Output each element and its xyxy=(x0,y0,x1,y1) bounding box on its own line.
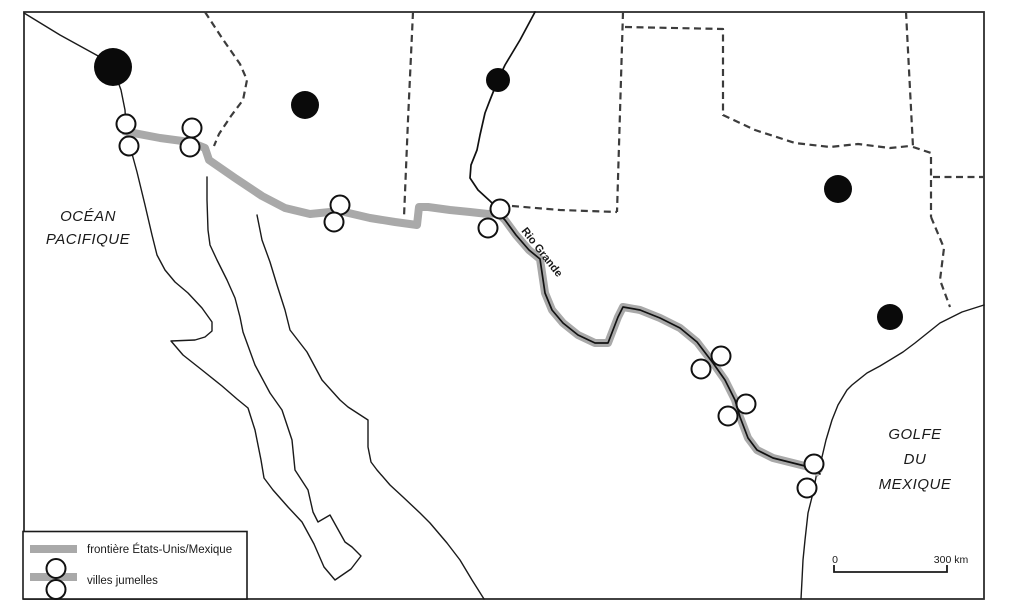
state-border-texas-oklahoma xyxy=(625,27,910,148)
map-page: OCÉAN PACIFIQUE GOLFE DU MEXIQUE Rio Gra… xyxy=(0,0,1010,610)
state-border-newmexico-texas-vertical xyxy=(617,12,623,212)
twin-city-marker xyxy=(325,213,344,232)
scale-bar-line xyxy=(834,565,947,572)
twin-city-marker xyxy=(798,479,817,498)
twin-city-marker xyxy=(479,219,498,238)
twin-city-marker xyxy=(181,138,200,157)
major-cities-layer xyxy=(94,48,903,330)
twin-city-marker xyxy=(737,395,756,414)
state-border-texas-louisiana xyxy=(931,217,950,307)
map-frame xyxy=(24,12,984,599)
state-border-newmexico-texas-horizontal xyxy=(512,206,617,212)
major-city-dot xyxy=(824,175,852,203)
state-border-california-arizona xyxy=(205,12,247,146)
scale-end-label: 300 km xyxy=(934,554,969,566)
border-map-canvas: OCÉAN PACIFIQUE GOLFE DU MEXIQUE Rio Gra… xyxy=(0,0,1010,610)
state-border-oklahoma-arkansas xyxy=(906,12,913,147)
gulf-label-line1: GOLFE xyxy=(888,426,942,443)
scale-start-label: 0 xyxy=(832,554,838,566)
twin-city-marker xyxy=(120,137,139,156)
twin-city-marker xyxy=(491,200,510,219)
major-city-dot xyxy=(291,91,319,119)
gulf-label-line3: MEXIQUE xyxy=(879,476,952,493)
major-city-dot xyxy=(877,304,903,330)
twin-city-marker xyxy=(183,119,202,138)
legend-border-label: frontière États-Unis/Mexique xyxy=(87,543,232,556)
legend: frontière États-Unis/Mexique villes jume… xyxy=(23,532,247,600)
gulf-label-line2: DU xyxy=(904,451,927,468)
mainland-mexico-coastline xyxy=(257,215,484,599)
state-border-texas-arkansas xyxy=(913,147,931,217)
scale-bar: 0 300 km xyxy=(832,554,968,572)
twin-city-marker xyxy=(117,115,136,134)
ocean-label-line2: PACIFIQUE xyxy=(46,231,131,248)
twin-city-marker xyxy=(719,407,738,426)
us-mexico-border-west xyxy=(123,131,498,225)
twin-city-marker xyxy=(692,360,711,379)
border-line-swatch xyxy=(30,545,77,553)
major-city-dot xyxy=(486,68,510,92)
twin-cities-swatch-circle-bottom xyxy=(47,580,66,599)
twin-city-marker xyxy=(805,455,824,474)
twin-cities-swatch-circle-top xyxy=(47,559,66,578)
rio-grande-upper-course xyxy=(470,12,535,213)
legend-twin-cities-label: villes jumelles xyxy=(87,575,158,587)
major-city-dot xyxy=(94,48,132,86)
state-border-arizona-newmexico xyxy=(404,12,413,217)
state-borders xyxy=(205,12,984,307)
ocean-label-line1: OCÉAN xyxy=(60,208,116,225)
twin-city-marker xyxy=(712,347,731,366)
